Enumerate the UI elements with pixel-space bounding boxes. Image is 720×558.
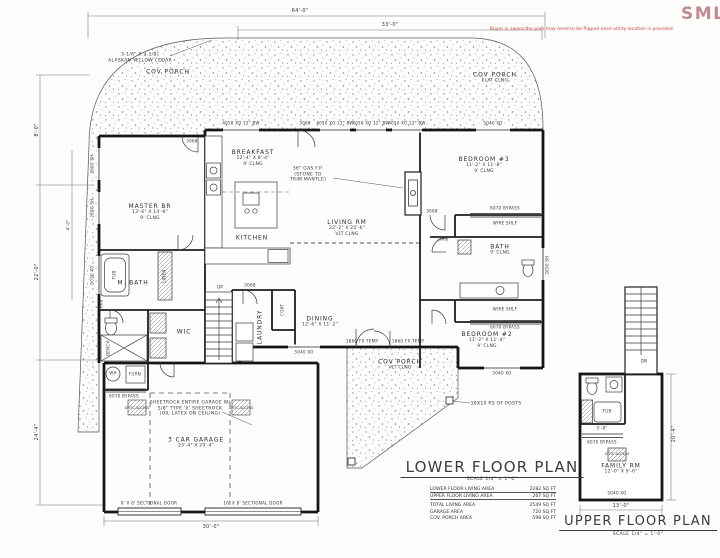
disclaimer-note: Buyer is aware the plan may need to be f… [477,27,687,32]
room-living: LIVING RM 22'-2" X 25'-6" VLT CLNG [327,219,366,237]
room-bath: BATH 9' CLNG [490,244,510,257]
upper-floor-plan-scale: SCALE 1/4" = 1'-0" [613,532,664,537]
coat-tag: COAT [281,304,286,316]
room-master: MASTER BR 13'-6" X 14'-6" 9' CLNG [128,203,171,221]
fireplace [405,172,421,215]
tub-tag: TUB [113,270,118,279]
window-tag: 5030 XO [91,265,96,284]
window-tag: 5040 XO [483,122,502,127]
bench-tag: BENCH [107,340,112,356]
room-kitchen: KITCHEN [236,234,268,241]
room-mbath: M. BATH [117,279,148,286]
posts-note: 10X10 RS OF POSTS [471,401,522,406]
wire-shelf-tag: WIRE SHLF [493,308,518,313]
bypass-doors [106,214,541,393]
door-tag: 3068 [186,140,197,145]
room-cov-porch-right: COV PORCH FLAT CLNG [473,72,517,85]
bypass-tag: 6070 BYPASS [109,395,139,400]
lower-floor-plan-scale: SCALE 1/4" = 1'-0" [467,477,518,482]
dim-left-mid: 22'-0" [34,264,40,281]
room-bedroom2: BEDROOM #2 11'-2" X 11'-4" 9' CLNG [461,331,512,349]
door-tag: 3068 [244,284,255,289]
room-breakfast: BREAKFAST 12'-4" X 8'-4" 9' CLNG [232,149,275,167]
door-tag: 3068 [299,122,310,127]
sectional-door-16-label: 16' X 8' SECTIONAL DOOR [223,502,282,507]
lower-floor-plan-title: LOWER FLOOR PLAN [401,458,584,478]
stairs-up [206,292,233,363]
dim-left-bottom: 24'-4" [34,424,40,441]
window-tag: 2650 SH [546,255,551,274]
wh-tag: WH [109,372,117,377]
wire-shelf-tag: WIRE SHLF [493,222,518,227]
door-tag: 3068 [426,210,437,215]
room-dining: DINING 12'-6" X 11'-2" [302,316,338,329]
dim-left-inner: 4'-0" [67,220,72,231]
upper-floor-plan-title: UPPER FLOOR PLAN [559,514,717,531]
window-tag: 4050 XO 12" BW [316,122,353,127]
bypass-tag: 6070 BYPASS [490,207,520,212]
bypass-tag: 6070 BYPASS [587,441,617,446]
window-tag: 5040 XO [294,351,313,356]
area-summary-table: LOWER FLOOR LIVING AREA2282 SQ FT UPPER … [430,486,556,521]
room-wic: WIC [177,328,192,335]
window-tag: 5040 XO [607,492,626,497]
window-tag: 5040 XO [492,372,511,377]
attic-access-tag: ATTIC ACCESS [605,452,630,456]
table-row: COV. PORCH AREA598 SQ FT [430,515,556,521]
furnace-tag: FURN [129,373,141,378]
dim-left-top: 8'-0" [34,123,40,136]
dn-tag: DN [641,360,648,365]
table-row: LOWER FLOOR LIVING AREA2282 SQ FT [430,486,556,493]
window-tag: 4050 XO 12" BW [388,122,425,127]
dim-garage-width: 30'-0" [203,524,220,530]
room-laundry: LAUNDRY [256,310,263,345]
door-tag: 2668 [100,299,105,310]
dim-upper-width: 13'-0" [613,503,630,509]
dim-porch-width: 33'-0" [382,22,399,28]
smls-watermark: SMLS [681,4,720,24]
sheetrock-note: SHEETROCK ENTIRE GARAGE W/ 5/8" TYPE 'X'… [150,401,231,418]
window-tag: 2650 SH [91,198,96,217]
bypass-tag: 6070 BYPASS [490,326,520,331]
fireplace-note: 36" GAS F.P. (STONE TO TRIM MANTLE) [290,167,326,184]
dim-upper-height: 20'-4" [671,426,677,443]
linen-tag: LINEN [163,269,168,282]
door-tag: 2668 [437,238,448,243]
floor-plan-sheet: SMLS Buyer is aware the plan may need to… [0,0,720,558]
room-bedroom3: BEDROOM #3 11'-2" X 11'-8" 9' CLNG [458,156,509,174]
up-tag: UP [217,285,224,290]
window-tag: 4050 XO 12" BW [222,122,259,127]
attic-access-tag: ATTIC ACCESS [125,406,150,410]
window-tag: 1860 FX TEMP [392,340,424,345]
sectional-door-9-label: 9' X 8' SECTIONAL DOOR [121,502,177,507]
window-tag: 2650 SH [91,154,96,173]
room-cov-porch-top: COV PORCH [146,68,190,75]
window-tag: 4050 XO 12" BW [352,122,389,127]
dim-overall-width: 64'-0" [292,8,309,14]
window-tag: 1860 FX TEMP [346,340,378,345]
room-family: FAMILY RM 12'-0" X 9'-6" [601,463,641,476]
dim-upper-bath: 5'-8" [597,427,608,432]
cedar-post-note: 3-1/8" X 3-1/8" ALASKAN YELLOW CEDAR [108,52,172,63]
table-row: UPPER FLOOR LIVING AREA267 SQ FT [430,493,556,500]
attic-access-tag: ATTIC ACCESS [229,406,254,410]
room-cov-porch-bottom: COV PORCH VLT CLNG [378,359,422,372]
tub-tag: TUB [602,410,611,415]
room-garage: 3 CAR GARAGE 23'-4" X 29'-4" [168,437,224,450]
